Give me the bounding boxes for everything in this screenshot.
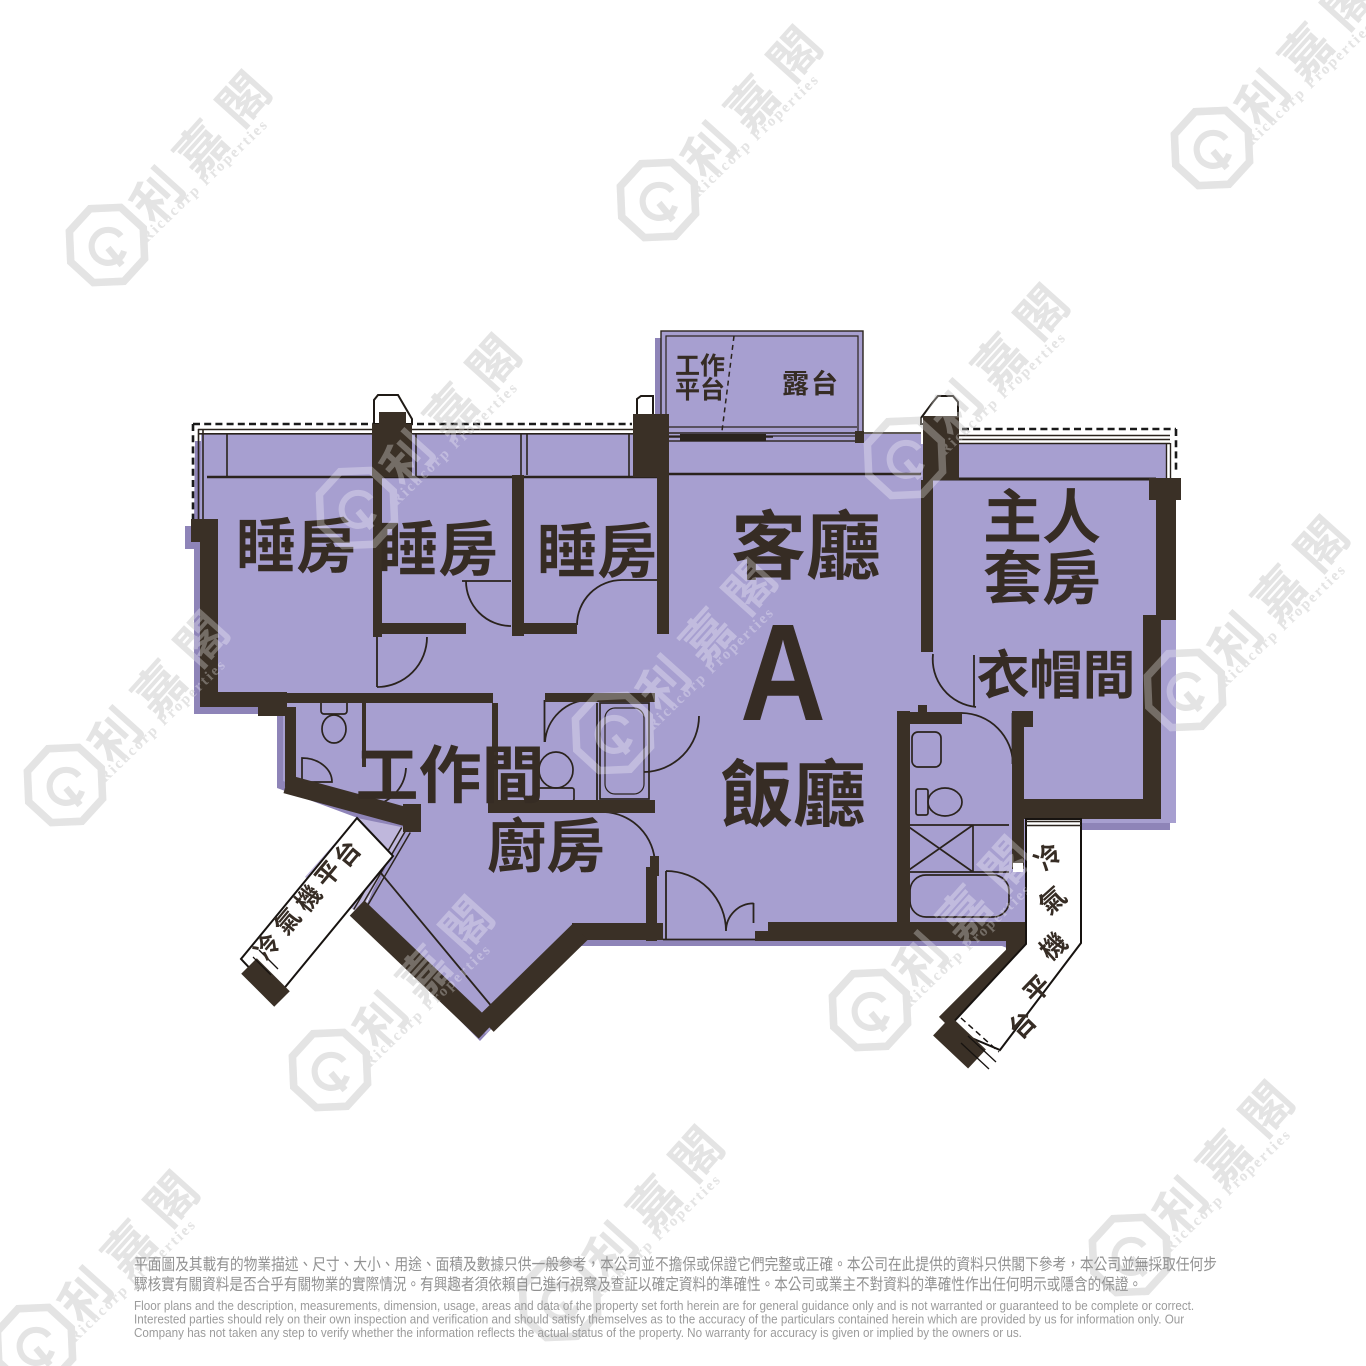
svg-text:Company has not taken any step: Company has not taken any step to verify… [134, 1325, 1022, 1340]
